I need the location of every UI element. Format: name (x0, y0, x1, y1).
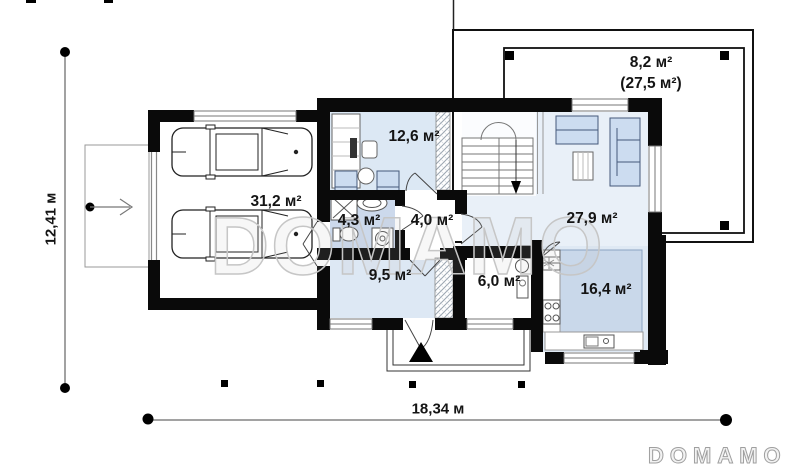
chair (377, 171, 399, 192)
room-label-garage: 31,2 м² (250, 193, 301, 211)
room-label-hall: 4,0 м² (411, 212, 453, 230)
terrace-post (720, 221, 729, 230)
room-label-terrace: 8,2 м² (630, 54, 672, 72)
living-right-window (649, 146, 661, 212)
entrance-porch (387, 330, 530, 371)
car-top (172, 125, 312, 179)
living-top-window (572, 99, 628, 111)
room-label-bathroom: 4,3 м² (338, 212, 380, 230)
room-label-office: 12,6 м² (388, 128, 439, 146)
dimension-width-label: 18,34 м (412, 401, 465, 418)
entrance-arrow-icon (409, 342, 433, 362)
fridge-icon (543, 250, 560, 270)
desk-chair (362, 141, 377, 158)
room-label-hallway: 9,5 м² (369, 267, 411, 285)
hallway-window (330, 319, 372, 329)
domamo-logo: DOMAMO (648, 443, 787, 469)
monitor-icon (350, 138, 357, 158)
room-label-vestibule: 6,0 м² (478, 273, 520, 291)
vestibule-window (467, 319, 513, 329)
terrace-post (505, 51, 514, 60)
room-label-living: 27,9 м² (566, 210, 617, 228)
room-label-kitchen: 16,4 м² (580, 281, 631, 299)
car-bottom (172, 207, 312, 261)
garage-window (194, 111, 296, 121)
kitchen-window (564, 353, 634, 363)
room-label-terrace-total: (27,5 м²) (620, 75, 681, 93)
sofa (610, 118, 640, 186)
chair (335, 171, 357, 192)
boiler-icon (516, 260, 529, 273)
front-door (405, 320, 433, 349)
driveway (85, 145, 149, 267)
plan-graphics (0, 0, 800, 473)
dimension-height-label: 12,41 м (43, 193, 60, 246)
round-table (358, 168, 374, 184)
floor-plan: 31,2 м² 12,6 м² 4,3 м² 4,0 м² 27,9 м² 9,… (0, 0, 800, 473)
circulation-floor (462, 196, 538, 246)
terrace-post (720, 51, 729, 60)
garage-gate (152, 152, 157, 260)
